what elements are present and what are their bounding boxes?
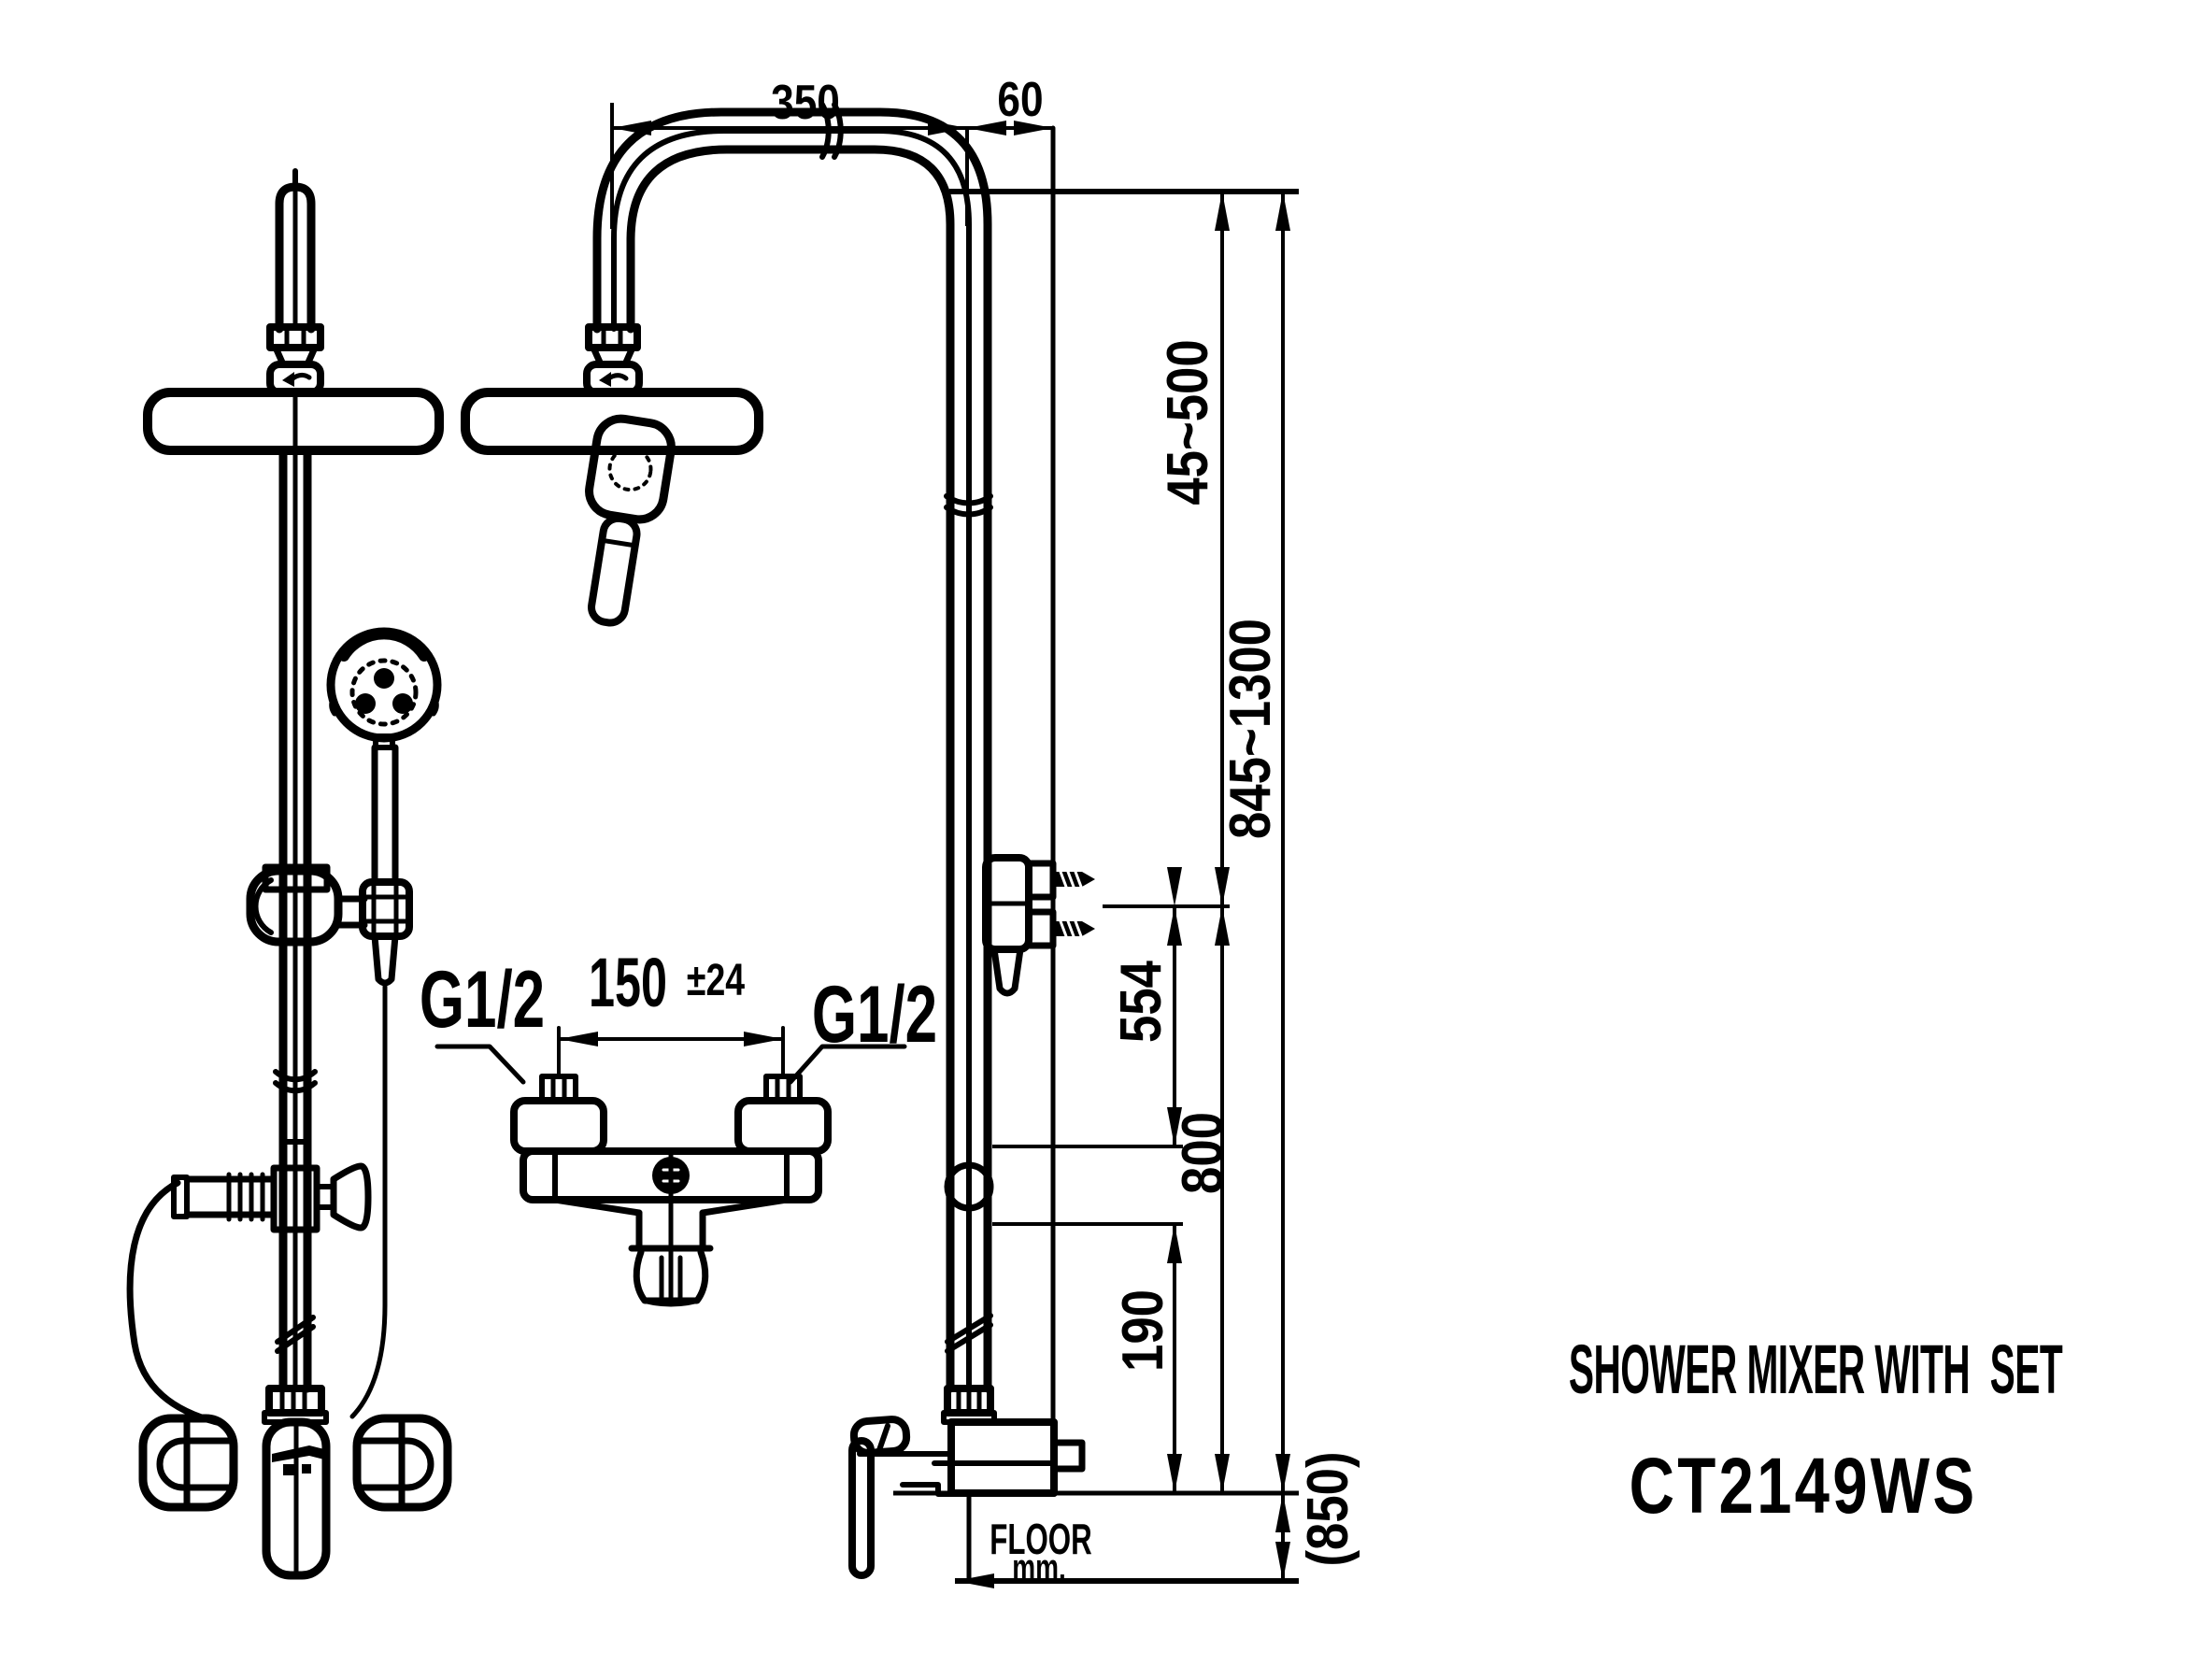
front-view-drawing — [130, 171, 448, 1575]
dim-150-label: 150 — [589, 948, 667, 1018]
dim-850-label: (850) — [1300, 1451, 1358, 1566]
left-inlet-thread-label: G1/2 — [420, 960, 545, 1040]
technical-drawing-canvas — [0, 0, 2207, 1680]
model-code: CT2149WS — [1630, 1446, 1978, 1525]
shower-mixer-technical-drawing: 350 60 45~500 845~1300 554 800 190 (850)… — [0, 0, 2207, 1680]
side-view-drawing — [465, 105, 1095, 1581]
dim-45-500-label: 45~500 — [1160, 339, 1217, 505]
right-inlet-thread-label: G1/2 — [812, 975, 937, 1055]
drawing-title: SHOWER MIXER WITH SET — [1569, 1335, 2062, 1404]
dim-845-1300-label: 845~1300 — [1222, 619, 1280, 839]
valve-detail-drawing — [437, 1028, 904, 1304]
dim-60-label: 60 — [997, 76, 1043, 124]
dim-554-label: 554 — [1113, 961, 1171, 1043]
dim-190-label: 190 — [1115, 1289, 1173, 1372]
dim-tolerance-label: ±24 — [687, 959, 745, 1004]
dimension-lines — [612, 103, 1299, 1588]
dim-350-label: 350 — [771, 78, 840, 127]
floor-unit-label: mm. — [1012, 1549, 1066, 1587]
dim-800-label: 800 — [1175, 1112, 1232, 1194]
